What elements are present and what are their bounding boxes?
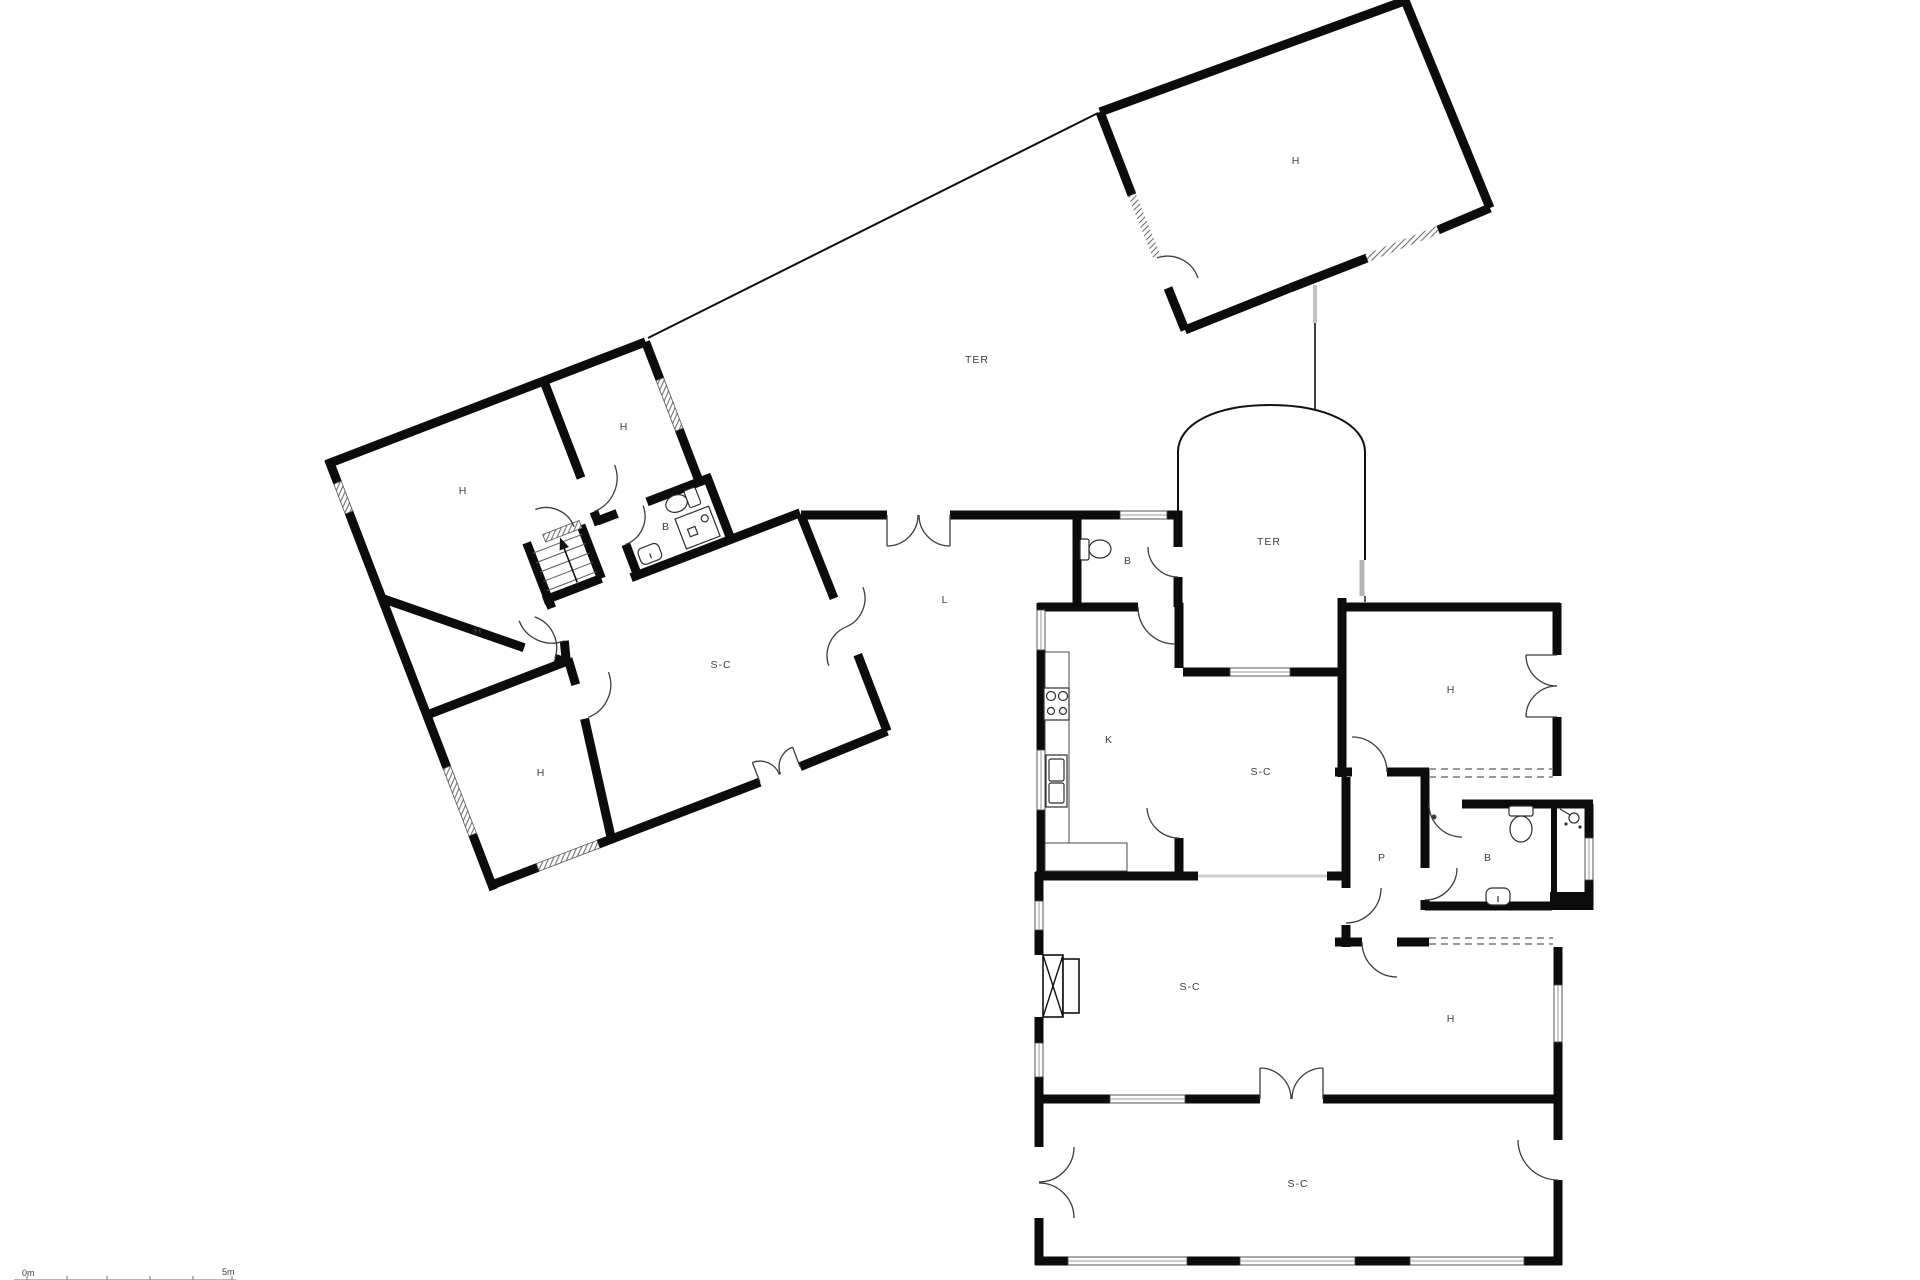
toilet-icon bbox=[1509, 806, 1533, 816]
room-label-l-room: L bbox=[942, 594, 949, 606]
floorplan-canvas: HHBHHS-CLTERHTERBKS-CHPBS-CHS-C 0m 5m bbox=[0, 0, 1920, 1280]
room-label-ter-top: TER bbox=[965, 354, 989, 366]
shower-icon bbox=[1560, 809, 1581, 828]
room-label-sc-mid: S-C bbox=[1179, 981, 1200, 993]
room-label-b-left: B bbox=[662, 521, 670, 533]
room-label-b-small: B bbox=[1124, 555, 1132, 567]
door-arc bbox=[1157, 256, 1198, 278]
room-h-top-right-windows bbox=[1132, 195, 1438, 258]
left-wing-windows bbox=[334, 360, 813, 890]
room-label-h-left-mid: H bbox=[474, 625, 483, 637]
room-label-h-left-bottom: H bbox=[537, 767, 546, 779]
door-arcs bbox=[887, 515, 1558, 1218]
room-label-h-left-big: H bbox=[459, 485, 468, 497]
room-label-p-hall: P bbox=[1378, 852, 1386, 864]
room-label-sc-porch: S-C bbox=[1287, 1178, 1308, 1190]
room-label-h-top-right: H bbox=[1292, 155, 1301, 167]
room-label-sc-upper: S-C bbox=[1250, 766, 1271, 778]
scale-end-label: 5m bbox=[222, 1267, 235, 1277]
room-label-h-right-top: H bbox=[1447, 684, 1456, 696]
scale-bar: 0m 5m bbox=[14, 1267, 236, 1280]
room-label-ter-arch: TER bbox=[1257, 536, 1281, 548]
room-label-h-left-small: H bbox=[620, 421, 629, 433]
fireplace-icon bbox=[1043, 955, 1079, 1017]
wall-block bbox=[1550, 892, 1593, 910]
room-label-h-right-bottom: H bbox=[1447, 1013, 1456, 1025]
room-label-b-right: B bbox=[1484, 852, 1492, 864]
left-wing-walls bbox=[325, 307, 890, 891]
left-wing bbox=[325, 297, 917, 891]
floorplan-page: HHBHHS-CLTERHTERBKS-CHPBS-CHS-C 0m 5m bbox=[0, 0, 1920, 1280]
room-label-kitchen: K bbox=[1105, 734, 1113, 746]
room-label-sc-left: S-C bbox=[710, 659, 731, 671]
right-wing-walls bbox=[801, 511, 1593, 1265]
stove-icon bbox=[1044, 688, 1069, 720]
toilet-icon bbox=[1080, 539, 1089, 560]
kitchen-sink-icon bbox=[1046, 755, 1067, 807]
scale-start-label: 0m bbox=[22, 1268, 35, 1278]
windows bbox=[1035, 511, 1593, 1265]
stairs-direction-arrow bbox=[564, 547, 578, 582]
